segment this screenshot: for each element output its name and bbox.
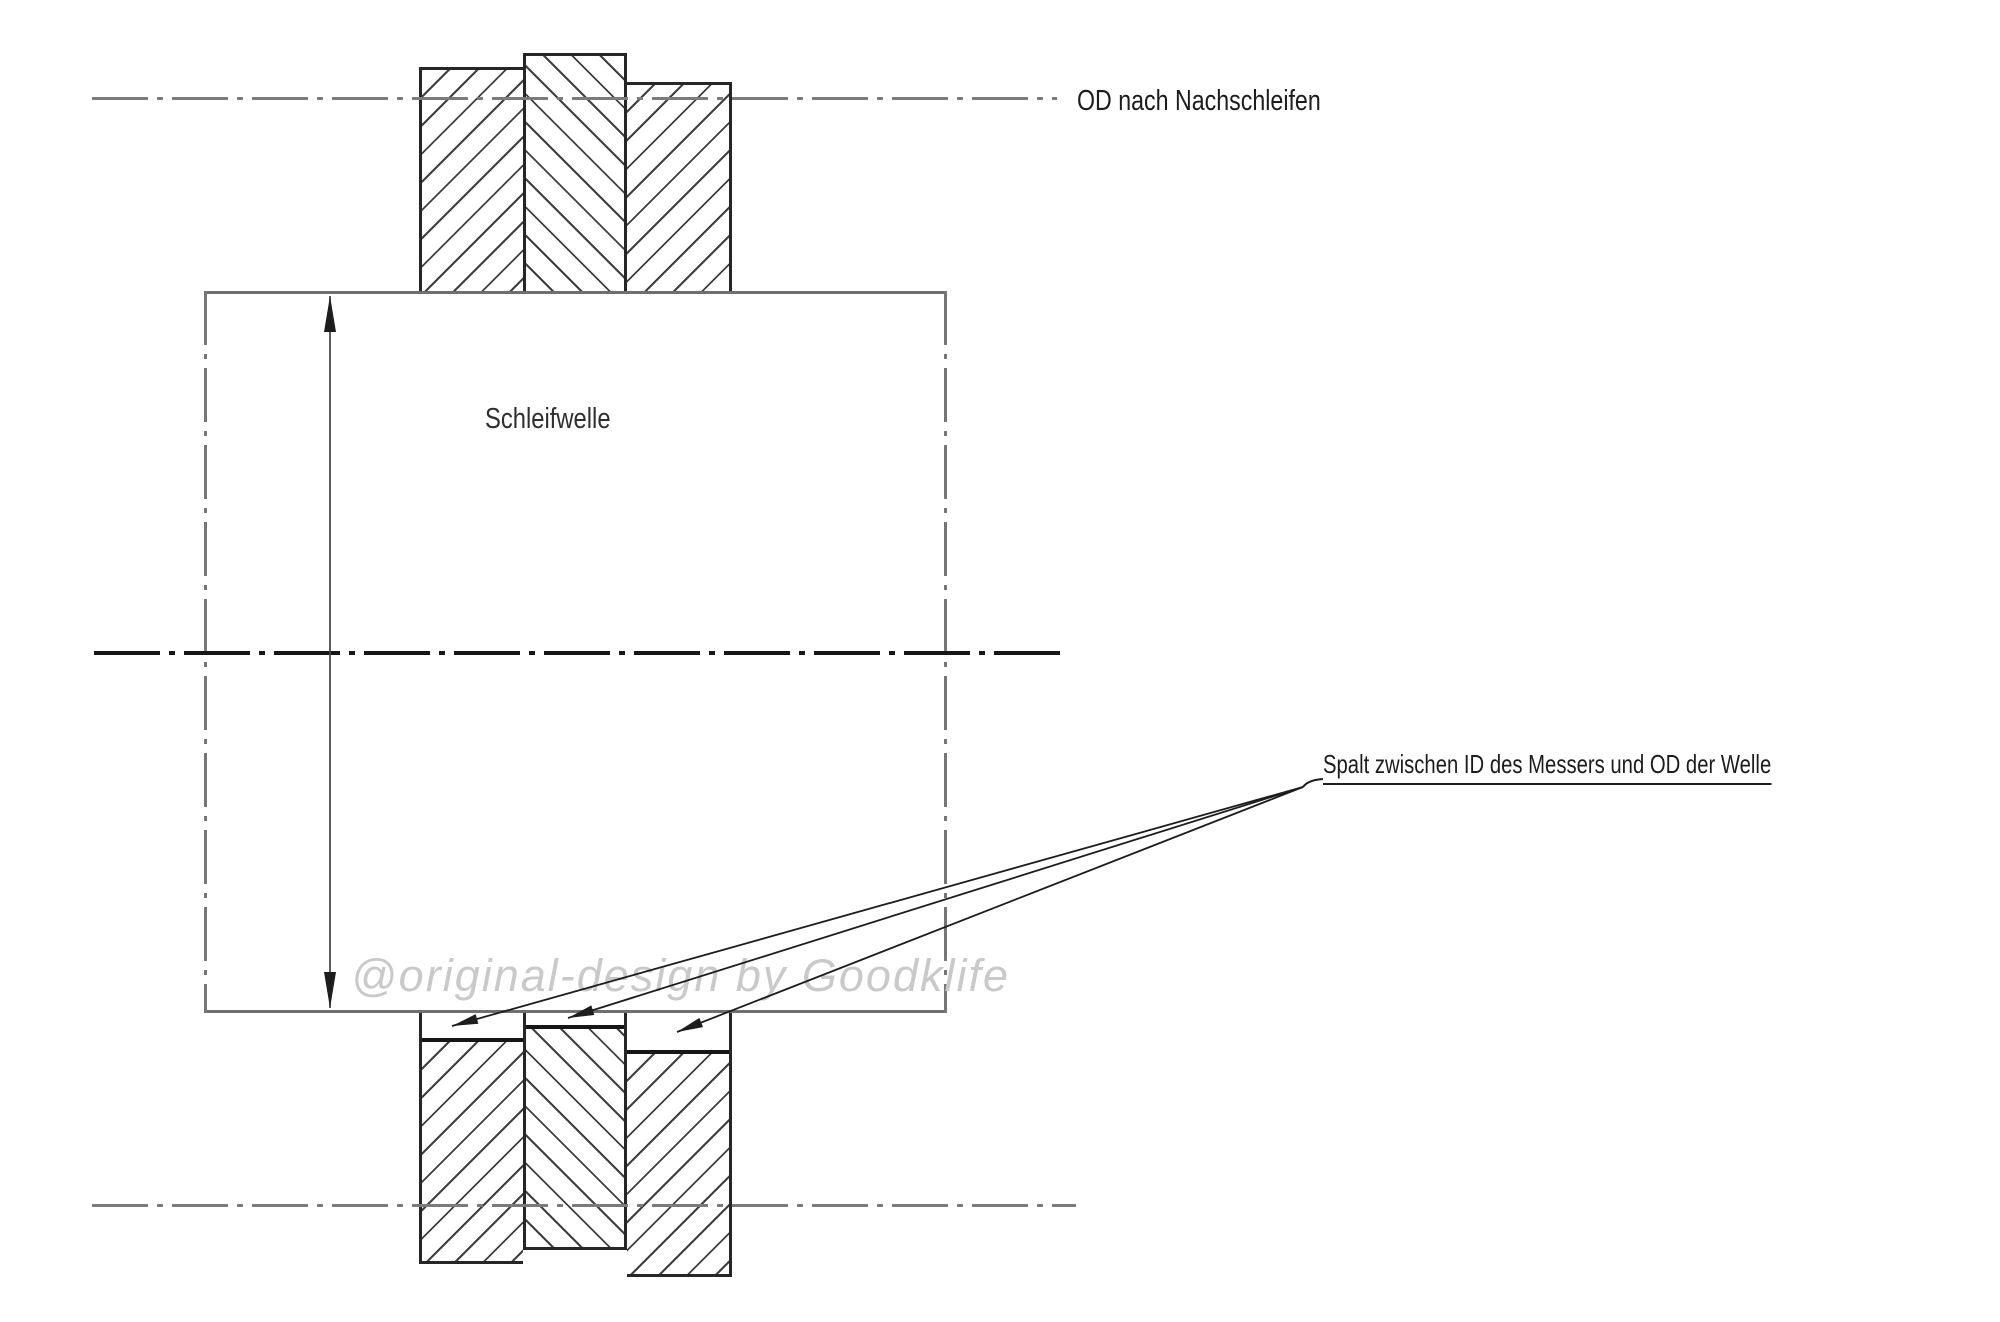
- centerline-shaft-axis: [94, 651, 1060, 655]
- gap-middle: [526, 1013, 624, 1025]
- leader-hook: [1303, 779, 1323, 787]
- bottom-blade-middle-body: [526, 1025, 624, 1247]
- top-blade-middle: [523, 53, 627, 291]
- bottom-blade-right-body: [627, 1050, 729, 1274]
- top-blade-right: [627, 82, 732, 291]
- watermark-text: @original-design by Goodklife: [351, 951, 1010, 1001]
- bottom-blade-middle: [523, 1013, 627, 1250]
- bottom-blade-left: [419, 1013, 523, 1264]
- label-shaft: Schleifwelle: [485, 404, 611, 436]
- gap-left: [422, 1013, 523, 1038]
- technical-drawing-canvas: @original-design by Goodklife OD nach Na…: [0, 0, 2000, 1322]
- bottom-blade-right: [627, 1013, 732, 1277]
- label-od-after-regrind: OD nach Nachschleifen: [1077, 86, 1321, 118]
- label-gap: Spalt zwischen ID des Messers und OD der…: [1323, 750, 1771, 785]
- centerline-od-top: [92, 97, 1057, 100]
- top-blade-left: [419, 67, 523, 291]
- gap-right: [627, 1013, 729, 1050]
- bottom-blade-left-body: [422, 1038, 523, 1261]
- centerline-od-bottom: [92, 1204, 1076, 1207]
